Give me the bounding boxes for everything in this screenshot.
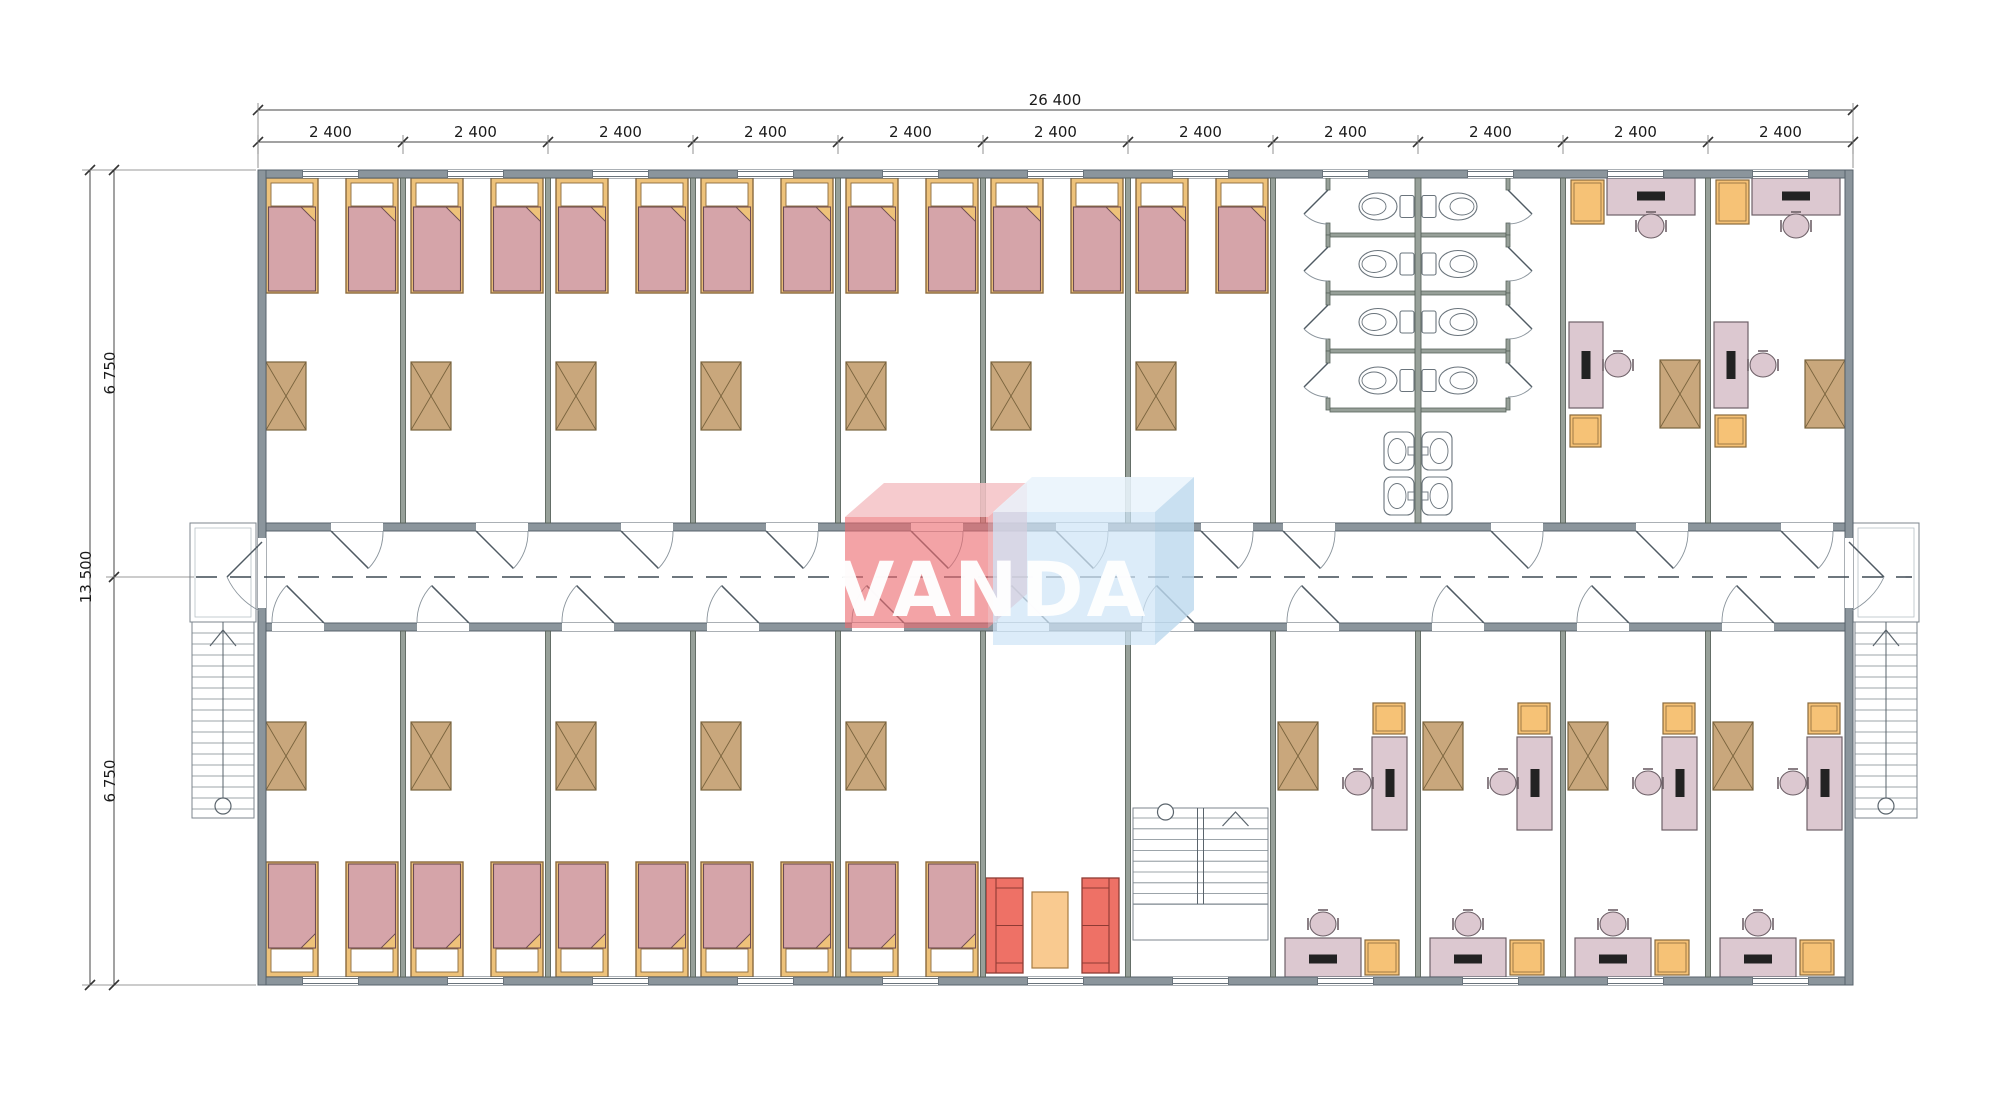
window xyxy=(303,170,359,178)
office-chair xyxy=(1603,351,1633,377)
office-top-1 xyxy=(1569,178,1700,447)
bed xyxy=(556,862,608,977)
window xyxy=(738,977,794,985)
bedroom-bottom-3 xyxy=(556,722,688,977)
dim-module-label: 2 400 xyxy=(1034,123,1077,141)
office-chair xyxy=(1488,769,1518,795)
window xyxy=(593,977,649,985)
window xyxy=(448,977,504,985)
bed xyxy=(491,862,543,977)
door xyxy=(562,586,614,631)
wardrobe-icon xyxy=(991,362,1031,430)
stairs-internal xyxy=(1133,804,1268,940)
bedroom-top-4 xyxy=(701,178,833,430)
dim-module-label: 2 400 xyxy=(309,123,352,141)
wc-block xyxy=(1304,178,1532,523)
door xyxy=(1577,586,1629,631)
dim-module-label: 2 400 xyxy=(1324,123,1367,141)
door xyxy=(1283,523,1335,568)
window xyxy=(1608,170,1664,178)
cabinet xyxy=(1571,180,1604,224)
bed xyxy=(411,862,463,977)
wardrobe-icon xyxy=(266,722,306,790)
dim-left-half-lower-label: 6 750 xyxy=(101,760,119,803)
bed xyxy=(266,178,318,293)
office-bottom-3 xyxy=(1568,703,1697,977)
wardrobe-icon xyxy=(411,722,451,790)
door xyxy=(417,586,469,631)
toilet-icon xyxy=(1359,309,1414,336)
wardrobe-icon xyxy=(1805,360,1845,428)
lounge-room xyxy=(986,878,1119,973)
watermark-text: VANDA xyxy=(836,545,1149,634)
window xyxy=(1173,170,1229,178)
watermark-vanda: VANDA xyxy=(836,477,1195,645)
monitor-icon xyxy=(1582,351,1591,379)
office-chair xyxy=(1781,212,1811,238)
office-chair xyxy=(1453,910,1483,936)
dim-left-total-label: 13 500 xyxy=(77,551,95,604)
bedroom-top-7 xyxy=(1136,178,1268,430)
bed xyxy=(1216,178,1268,293)
bed xyxy=(1071,178,1123,293)
door xyxy=(331,523,383,568)
office-bottom-2 xyxy=(1423,703,1552,977)
cabinet xyxy=(1655,940,1689,975)
window xyxy=(593,170,649,178)
window xyxy=(1753,977,1809,985)
wardrobe-icon xyxy=(1713,722,1753,790)
toilet-icon xyxy=(1422,193,1477,220)
wardrobe-icon xyxy=(701,362,741,430)
bedroom-top-6 xyxy=(991,178,1123,430)
stairs-external-left xyxy=(190,523,256,818)
wardrobe-icon xyxy=(1278,722,1318,790)
door xyxy=(707,586,759,631)
window xyxy=(1318,977,1374,985)
bed xyxy=(781,862,833,977)
bed xyxy=(346,862,398,977)
monitor-icon xyxy=(1309,955,1337,964)
cabinet xyxy=(1570,415,1601,447)
monitor-icon xyxy=(1454,955,1482,964)
bed xyxy=(556,178,608,293)
sofa xyxy=(1082,878,1119,973)
wardrobe-icon xyxy=(701,722,741,790)
wc-stall-door xyxy=(1508,190,1532,224)
office-chair xyxy=(1308,910,1338,936)
dim-module-label: 2 400 xyxy=(1179,123,1222,141)
dim-module-label: 2 400 xyxy=(599,123,642,141)
window xyxy=(448,170,504,178)
bed xyxy=(846,862,898,977)
bed xyxy=(926,862,978,977)
window xyxy=(883,977,939,985)
wardrobe-icon xyxy=(1660,360,1700,428)
toilet-icon xyxy=(1359,193,1414,220)
floor-plan: 26 400 13 500 6 750 6 750 2 4002 4002 40… xyxy=(0,0,2000,1099)
cabinet xyxy=(1663,703,1695,734)
bed xyxy=(1136,178,1188,293)
bed xyxy=(701,862,753,977)
dim-top-total-label: 26 400 xyxy=(1029,91,1082,109)
coffee-table xyxy=(1032,892,1068,968)
office-chair xyxy=(1748,351,1778,377)
office-top-2 xyxy=(1714,178,1845,447)
toilet-icon xyxy=(1422,367,1477,394)
wardrobe-icon xyxy=(1136,362,1176,430)
sink-icon xyxy=(1422,432,1452,470)
bed xyxy=(846,178,898,293)
dim-module-label: 2 400 xyxy=(889,123,932,141)
wc-stall-door xyxy=(1508,305,1532,339)
door xyxy=(476,523,528,568)
toilet-icon xyxy=(1359,367,1414,394)
cabinet xyxy=(1808,703,1840,734)
bed xyxy=(266,862,318,977)
dim-module-label: 2 400 xyxy=(1614,123,1657,141)
window xyxy=(1028,977,1084,985)
bed xyxy=(636,178,688,293)
sink-icon xyxy=(1384,477,1414,515)
bedroom-top-1 xyxy=(266,178,398,430)
monitor-icon xyxy=(1782,192,1810,201)
cabinet xyxy=(1716,180,1749,224)
door xyxy=(766,523,818,568)
wardrobe-icon xyxy=(266,362,306,430)
monitor-icon xyxy=(1744,955,1772,964)
wardrobe-icon xyxy=(556,362,596,430)
door xyxy=(1491,523,1543,568)
office-chair xyxy=(1633,769,1663,795)
bedroom-bottom-2 xyxy=(411,722,543,977)
wc-stall-door xyxy=(1304,305,1328,339)
cabinet xyxy=(1715,415,1746,447)
monitor-icon xyxy=(1676,769,1685,797)
office-chair xyxy=(1636,212,1666,238)
dim-module-label: 2 400 xyxy=(1469,123,1512,141)
cabinet xyxy=(1373,703,1405,734)
door xyxy=(1287,586,1339,631)
office-bottom-1 xyxy=(1278,703,1407,977)
toilet-icon xyxy=(1359,251,1414,278)
window xyxy=(883,170,939,178)
office-bottom-4 xyxy=(1713,703,1842,977)
monitor-icon xyxy=(1821,769,1830,797)
wc-stall-door xyxy=(1508,363,1532,397)
wardrobe-icon xyxy=(1423,722,1463,790)
bedroom-top-3 xyxy=(556,178,688,430)
bed xyxy=(491,178,543,293)
door xyxy=(1432,586,1484,631)
cabinet xyxy=(1510,940,1544,975)
monitor-icon xyxy=(1599,955,1627,964)
cabinet xyxy=(1365,940,1399,975)
window xyxy=(738,170,794,178)
office-chair xyxy=(1598,910,1628,936)
bed xyxy=(991,178,1043,293)
window xyxy=(1028,170,1084,178)
door xyxy=(621,523,673,568)
door xyxy=(272,586,324,631)
bed xyxy=(346,178,398,293)
cabinet xyxy=(1518,703,1550,734)
wc-stall-door xyxy=(1304,247,1328,281)
monitor-icon xyxy=(1637,192,1665,201)
office-chair xyxy=(1743,910,1773,936)
door xyxy=(1201,523,1253,568)
wc-stall-door xyxy=(1508,247,1532,281)
wardrobe-icon xyxy=(1568,722,1608,790)
toilet-icon xyxy=(1422,309,1477,336)
sink-icon xyxy=(1384,432,1414,470)
wardrobe-icon xyxy=(556,722,596,790)
bed xyxy=(781,178,833,293)
window xyxy=(1323,170,1369,178)
window xyxy=(1753,170,1809,178)
window xyxy=(1468,170,1514,178)
floor-plan-page: 26 400 13 500 6 750 6 750 2 4002 4002 40… xyxy=(0,0,2000,1099)
office-chair xyxy=(1778,769,1808,795)
monitor-icon xyxy=(1386,769,1395,797)
door xyxy=(1781,523,1833,568)
stairs-external-right xyxy=(1853,523,1919,818)
bed xyxy=(636,862,688,977)
bedroom-top-5 xyxy=(846,178,978,430)
wardrobe-icon xyxy=(846,362,886,430)
monitor-icon xyxy=(1727,351,1736,379)
bed xyxy=(701,178,753,293)
bedroom-bottom-1 xyxy=(266,722,398,977)
sink-icon xyxy=(1422,477,1452,515)
wardrobe-icon xyxy=(846,722,886,790)
wardrobe-icon xyxy=(411,362,451,430)
monitor-icon xyxy=(1531,769,1540,797)
bedroom-bottom-4 xyxy=(701,722,833,977)
window xyxy=(1463,977,1519,985)
wc-stall-door xyxy=(1304,363,1328,397)
door xyxy=(1722,586,1774,631)
window xyxy=(303,977,359,985)
dim-left-half-upper-label: 6 750 xyxy=(101,352,119,395)
bedroom-top-2 xyxy=(411,178,543,430)
dim-module-label: 2 400 xyxy=(1759,123,1802,141)
wc-stall-door xyxy=(1304,190,1328,224)
door xyxy=(1636,523,1688,568)
window xyxy=(1608,977,1664,985)
office-chair xyxy=(1343,769,1373,795)
sofa xyxy=(986,878,1023,973)
window xyxy=(1173,977,1229,985)
bed xyxy=(411,178,463,293)
toilet-icon xyxy=(1422,251,1477,278)
bedroom-bottom-5 xyxy=(846,722,978,977)
dim-module-label: 2 400 xyxy=(454,123,497,141)
dim-module-label: 2 400 xyxy=(744,123,787,141)
cabinet xyxy=(1800,940,1834,975)
bed xyxy=(926,178,978,293)
